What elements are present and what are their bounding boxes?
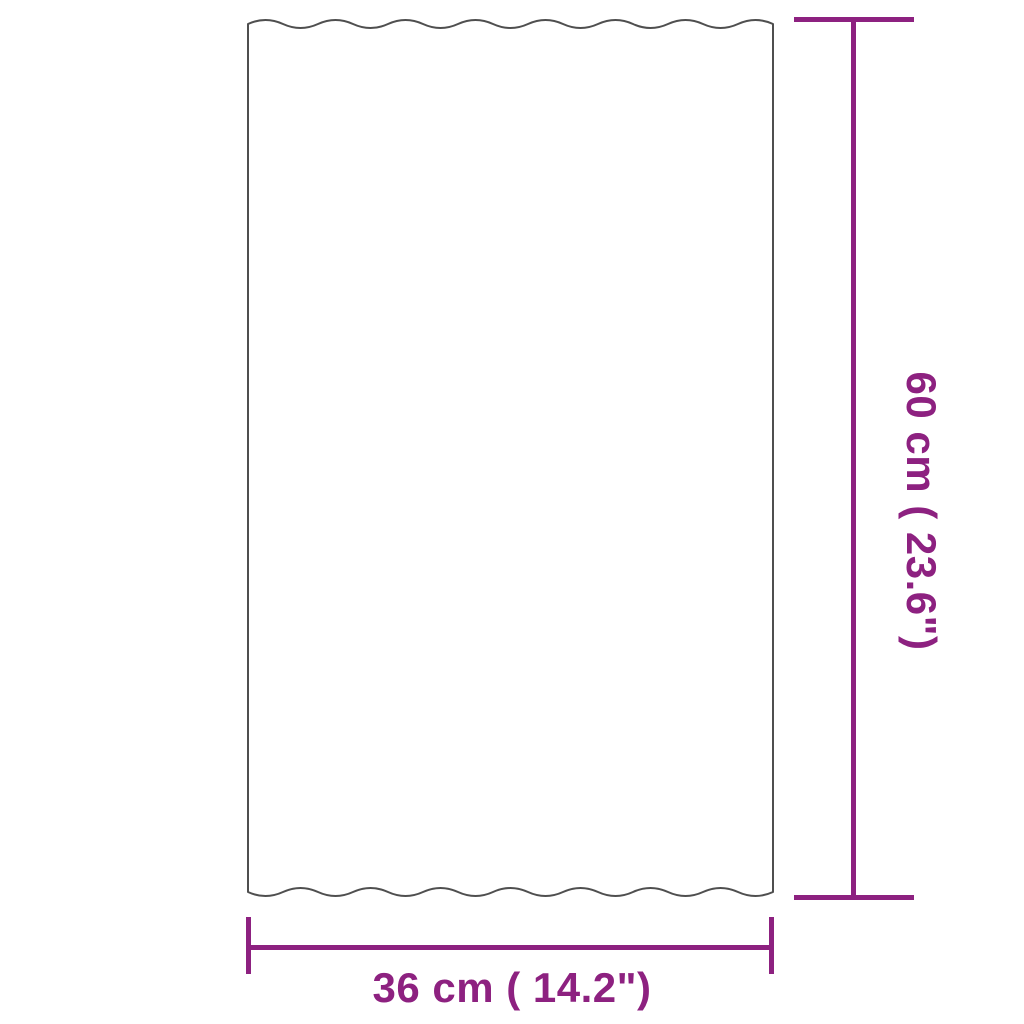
- horizontal-dimension-label: 36 cm ( 14.2"): [312, 966, 712, 1010]
- vertical-dimension-label: 60 cm ( 23.6"): [899, 361, 943, 661]
- vertical-dimension-bottom-cap: [794, 895, 914, 900]
- vertical-dimension-line: [851, 17, 856, 900]
- horizontal-dimension-line: [246, 945, 774, 950]
- dimension-diagram: 60 cm ( 23.6") 36 cm ( 14.2"): [0, 0, 1024, 1024]
- sheet-outline: [248, 20, 773, 896]
- horizontal-dimension-right-cap: [769, 917, 774, 974]
- horizontal-dimension-left-cap: [246, 917, 251, 974]
- vertical-dimension-top-cap: [794, 17, 914, 22]
- sheet-panel: [0, 0, 1024, 1024]
